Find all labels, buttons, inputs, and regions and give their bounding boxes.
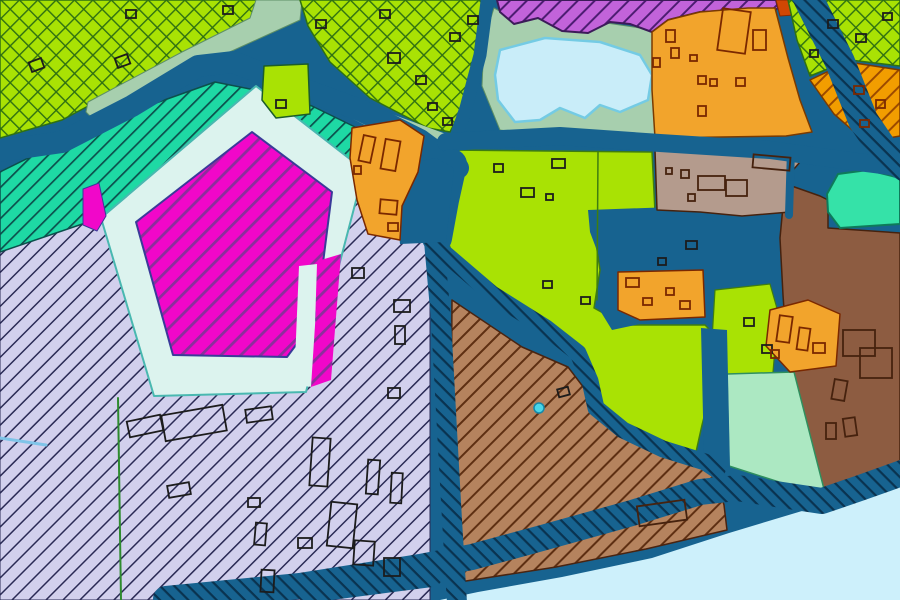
map-viewport[interactable] [0, 0, 900, 600]
channel-mint-west [701, 328, 730, 468]
parcel-line-lime [597, 152, 598, 300]
waterbody-lake [495, 38, 652, 122]
region-turquoise [827, 170, 900, 228]
parcel-lime-in-teal [262, 64, 310, 118]
map-layers [0, 0, 900, 600]
cyan-dot [534, 403, 544, 413]
zoning-map-canvas[interactable] [0, 0, 900, 600]
